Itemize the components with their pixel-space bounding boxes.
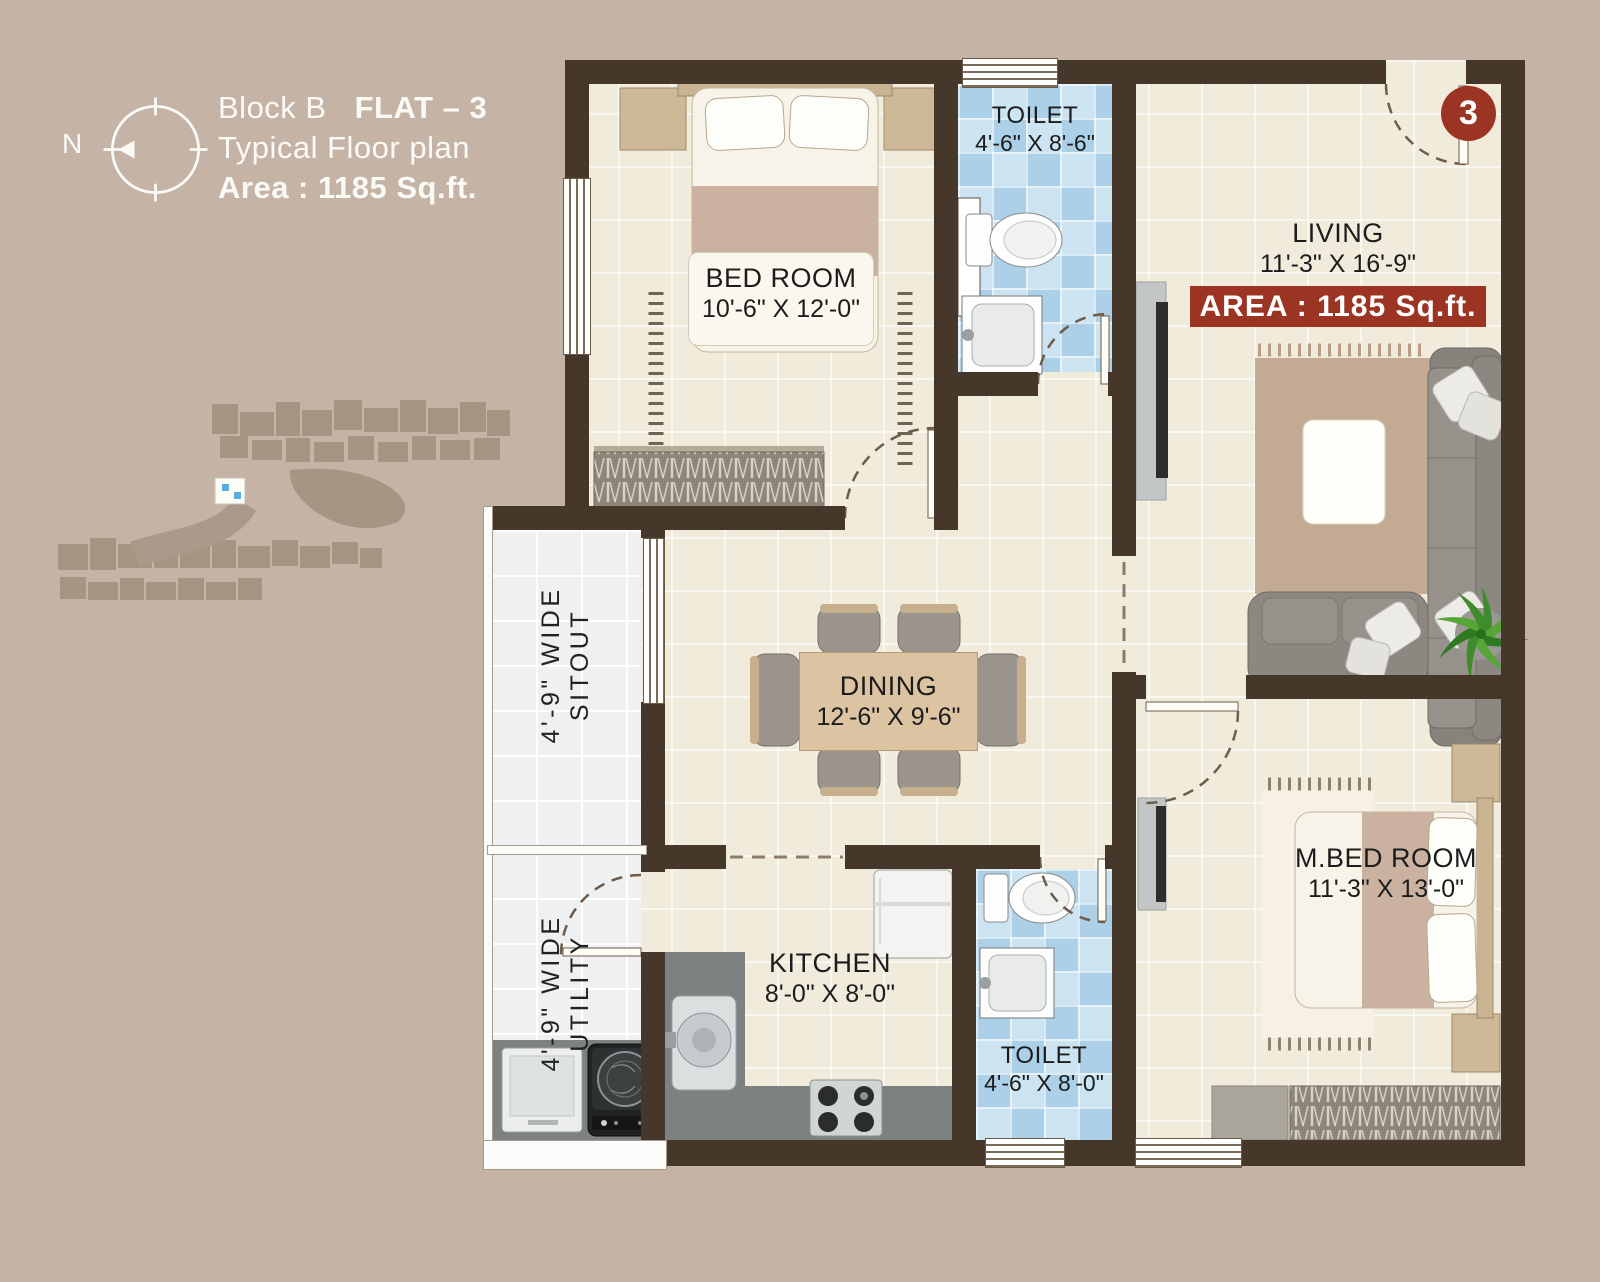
area-banner: AREA : 1185 Sq.ft.	[1190, 286, 1486, 327]
toilet-bottom-name: TOILET	[976, 1042, 1112, 1070]
kitchen-dims: 8'-0" X 8'-0"	[735, 980, 925, 1010]
window-toilet-top	[962, 58, 1058, 88]
wall	[976, 845, 1040, 869]
dining-name: DINING	[800, 671, 977, 703]
block-label: Block B	[218, 90, 327, 125]
compass: N	[62, 92, 222, 207]
kitchen-name: KITCHEN	[735, 948, 925, 980]
wall	[641, 952, 665, 1140]
toilet-top-dims: 4'-6" X 8'-6"	[958, 130, 1112, 157]
sitout-outer-railing	[483, 506, 493, 1170]
toilet-top-label: TOILET 4'-6" X 8'-6"	[958, 102, 1112, 157]
site-key-map	[40, 392, 510, 632]
dining-dims: 12'-6" X 9'-6"	[800, 703, 977, 733]
compass-north-label: N	[62, 128, 82, 160]
sitout-label: 4'-9" WIDE SITOUT	[534, 515, 598, 815]
highlighted-flat-unit	[215, 478, 245, 504]
wall	[1501, 84, 1525, 1166]
wall	[1105, 845, 1112, 869]
bedroom-name: BED ROOM	[689, 263, 873, 295]
window-sitout-door	[643, 538, 665, 704]
living-dims: 11'-3" X 16'-9"	[1190, 250, 1486, 280]
kitchen-label: KITCHEN 8'-0" X 8'-0"	[735, 948, 925, 1009]
wall	[665, 845, 726, 869]
wall	[934, 84, 958, 530]
master-bedroom-name: M.BED ROOM	[1236, 843, 1536, 875]
master-bedroom-dims: 11'-3" X 13'-0"	[1236, 875, 1536, 905]
utility-name: UTILITY	[566, 843, 595, 1143]
bedroom-label: BED ROOM 10'-6" X 12'-0"	[688, 252, 874, 346]
toilet-top-name: TOILET	[958, 102, 1112, 130]
bedroom-dims: 10'-6" X 12'-0"	[689, 295, 873, 325]
kitchen-counter-bottom	[665, 1086, 952, 1140]
window-master-bedroom	[1135, 1138, 1242, 1168]
toilet-bottom-dims: 4'-6" X 8'-0"	[976, 1070, 1112, 1097]
title-block: Block BFLAT – 3 Typical Floor plan Area …	[218, 88, 487, 208]
dining-label: DINING 12'-6" X 9'-6"	[800, 671, 977, 732]
toilet-bottom-floor	[976, 869, 1112, 1140]
wall	[1136, 675, 1146, 699]
wall	[1246, 675, 1501, 699]
flat-number-badge: 3	[1441, 86, 1496, 141]
sitout-width: 4'-9" WIDE	[537, 515, 566, 815]
wall	[1466, 60, 1525, 84]
utility-label: 4'-9" WIDE UTILITY	[534, 843, 598, 1143]
dining-table: DINING 12'-6" X 9'-6"	[799, 652, 978, 751]
wall	[952, 845, 976, 1140]
sitout-name: SITOUT	[566, 515, 595, 815]
plan-area-label: Area : 1185 Sq.ft.	[218, 168, 487, 208]
utility-width: 4'-9" WIDE	[537, 843, 566, 1143]
wall	[1112, 84, 1136, 556]
wall	[1112, 672, 1136, 1140]
flat-label: FLAT – 3	[355, 90, 488, 125]
window-bedroom-left	[563, 178, 591, 355]
living-label: LIVING 11'-3" X 16'-9"	[1190, 218, 1486, 279]
master-bedroom-label: M.BED ROOM 11'-3" X 13'-0"	[1236, 843, 1536, 904]
floor-plan-page: N Block BFLAT – 3 Typical Floor plan Are…	[0, 0, 1600, 1282]
living-name: LIVING	[1190, 218, 1486, 250]
plan-subtitle: Typical Floor plan	[218, 128, 487, 168]
wall	[845, 845, 952, 869]
utility-bottom-railing	[483, 1140, 667, 1170]
wall	[665, 1140, 1525, 1166]
toilet-bottom-label: TOILET 4'-6" X 8'-0"	[976, 1042, 1112, 1097]
window-toilet-bottom	[985, 1138, 1065, 1168]
title-line-1: Block BFLAT – 3	[218, 88, 487, 128]
compass-rose-icon	[98, 92, 213, 207]
wall	[958, 372, 1038, 396]
wall	[641, 506, 665, 538]
